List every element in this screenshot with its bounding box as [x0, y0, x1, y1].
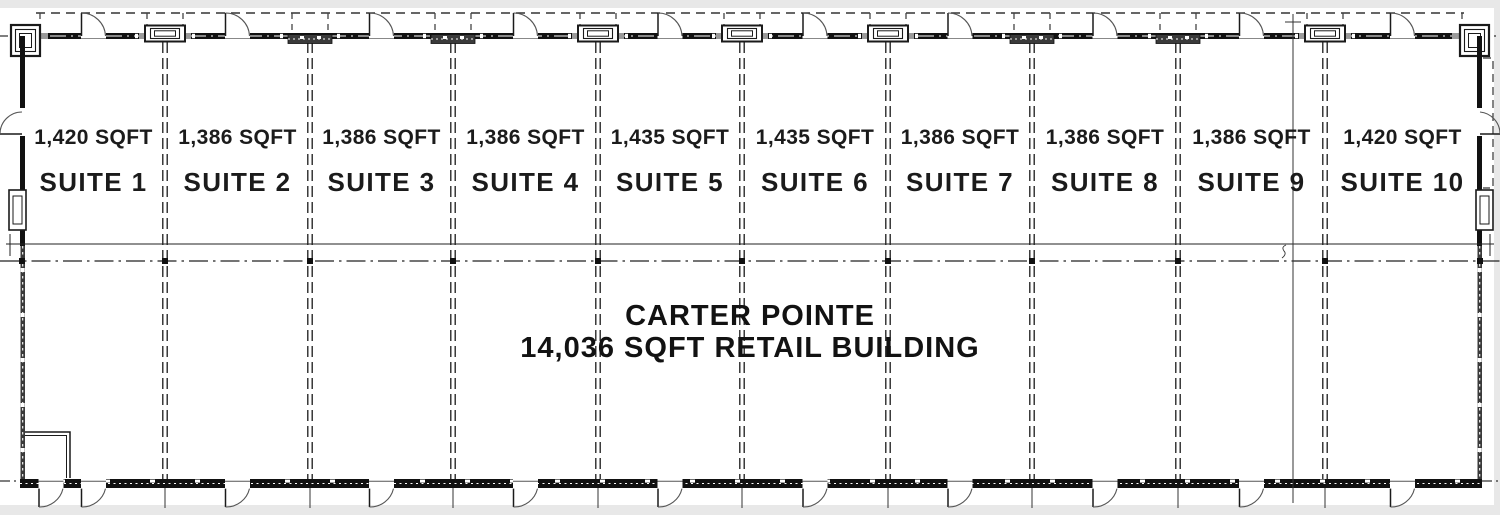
suite-sqft-label: 1,420 SQFT	[22, 126, 165, 150]
suite-divider	[1323, 42, 1327, 508]
suite-name-label: SUITE 3	[310, 167, 453, 198]
suite-name-label: SUITE 6	[742, 167, 888, 198]
storefront-door	[513, 13, 538, 40]
lease-line	[6, 234, 1494, 256]
suite-name-label: SUITE 10	[1325, 167, 1480, 198]
rear-door	[369, 478, 394, 507]
suite-sqft-label: 1,386 SQFT	[1178, 126, 1325, 150]
suite-label-5: 1,435 SQFTSUITE 5	[598, 126, 742, 198]
suite-name-label: SUITE 8	[1032, 167, 1178, 198]
suite-label-6: 1,435 SQFTSUITE 6	[742, 126, 888, 198]
grid-line	[1282, 14, 1301, 503]
rear-door	[803, 478, 828, 507]
suite-divider	[163, 42, 167, 508]
storefront-door	[1239, 13, 1264, 40]
rear-door	[948, 478, 973, 507]
suite-divider	[308, 42, 312, 508]
rear-door	[81, 478, 106, 507]
suite-sqft-label: 1,386 SQFT	[1032, 126, 1178, 150]
pier-column-framed	[139, 26, 191, 42]
pier-column-framed	[572, 26, 624, 42]
suite-label-4: 1,386 SQFTSUITE 4	[453, 126, 598, 198]
suite-label-1: 1,420 SQFTSUITE 1	[22, 126, 165, 198]
rear-door	[1390, 478, 1415, 507]
pier-column-hatched	[288, 35, 332, 44]
suite-label-7: 1,386 SQFTSUITE 7	[888, 126, 1032, 198]
suite-name-label: SUITE 9	[1178, 167, 1325, 198]
pier-column-hatched	[1156, 35, 1200, 44]
storefront-door	[225, 13, 250, 40]
suite-label-9: 1,386 SQFTSUITE 9	[1178, 126, 1325, 198]
storefront-door	[658, 13, 683, 40]
rear-door	[1239, 478, 1264, 507]
suite-sqft-label: 1,386 SQFT	[310, 126, 453, 150]
pier-column-framed	[1299, 26, 1351, 42]
storefront-door	[1390, 13, 1415, 40]
utility-closet	[25, 432, 70, 478]
pier-column-framed	[716, 26, 768, 42]
suite-name-label: SUITE 7	[888, 167, 1032, 198]
suite-divider	[1176, 42, 1180, 508]
suite-label-10: 1,420 SQFTSUITE 10	[1325, 126, 1480, 198]
suite-label-3: 1,386 SQFTSUITE 3	[310, 126, 453, 198]
suite-sqft-label: 1,386 SQFT	[165, 126, 310, 150]
pier-column-hatched	[431, 35, 475, 44]
suite-divider	[740, 42, 744, 508]
suite-divider	[886, 42, 890, 508]
building-name: CARTER POINTE	[0, 300, 1500, 332]
storefront-door	[803, 13, 828, 40]
suite-divider	[451, 42, 455, 508]
storefront-door	[81, 13, 106, 40]
suite-sqft-label: 1,435 SQFT	[598, 126, 742, 150]
pier-column-hatched	[1010, 35, 1054, 44]
suite-sqft-label: 1,386 SQFT	[888, 126, 1032, 150]
storefront-door	[948, 13, 973, 40]
pier-column-framed	[862, 26, 914, 42]
suite-name-label: SUITE 1	[22, 167, 165, 198]
rear-door	[513, 478, 538, 507]
corner-column-right	[1452, 25, 1489, 56]
suite-name-label: SUITE 2	[165, 167, 310, 198]
rear-door	[1093, 478, 1118, 507]
suite-sqft-label: 1,420 SQFT	[1325, 126, 1480, 150]
centerline-dashdot	[0, 258, 1500, 264]
suite-name-label: SUITE 5	[598, 167, 742, 198]
storefront-door	[1093, 13, 1118, 40]
rear-door	[658, 478, 683, 507]
floor-plan-linework	[0, 0, 1500, 515]
rear-door	[225, 478, 250, 507]
building-title-block: CARTER POINTE 14,036 SQFT RETAIL BUILDIN…	[0, 300, 1500, 364]
suite-sqft-label: 1,386 SQFT	[453, 126, 598, 150]
suite-label-2: 1,386 SQFTSUITE 2	[165, 126, 310, 198]
suite-sqft-label: 1,435 SQFT	[742, 126, 888, 150]
suite-name-label: SUITE 4	[453, 167, 598, 198]
storefront-door	[369, 13, 394, 40]
corner-column-left	[11, 25, 48, 56]
suite-divider	[1030, 42, 1034, 508]
floor-plan-page: 1,420 SQFTSUITE 11,386 SQFTSUITE 21,386 …	[0, 0, 1500, 515]
suite-label-8: 1,386 SQFTSUITE 8	[1032, 126, 1178, 198]
building-subtitle: 14,036 SQFT RETAIL BUILDING	[0, 332, 1500, 364]
suite-divider	[596, 42, 600, 508]
rear-door	[39, 478, 64, 507]
